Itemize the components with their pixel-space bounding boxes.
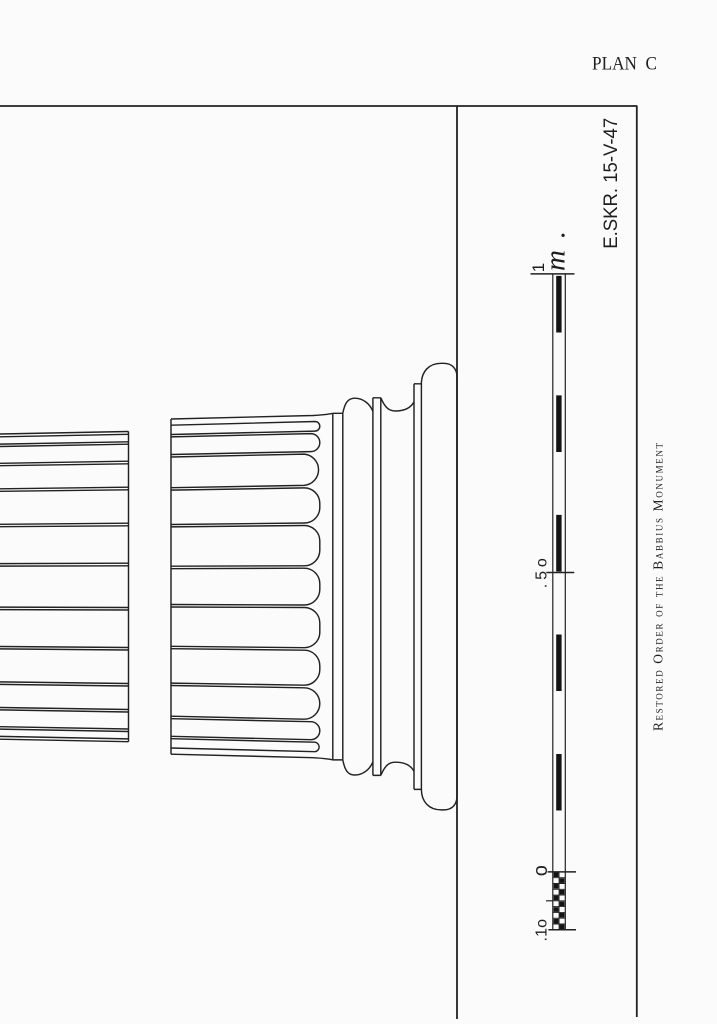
svg-text:PLAN C: PLAN C <box>592 54 657 75</box>
svg-text:Restored Order of the Babbius: Restored Order of the Babbius Monument <box>651 443 666 732</box>
svg-text:E.SKR. 15-V-47: E.SKR. 15-V-47 <box>600 118 622 249</box>
svg-text:m.: m. <box>540 231 572 271</box>
svg-text:.1o: .1o <box>534 919 551 942</box>
svg-text:o: o <box>530 865 552 876</box>
